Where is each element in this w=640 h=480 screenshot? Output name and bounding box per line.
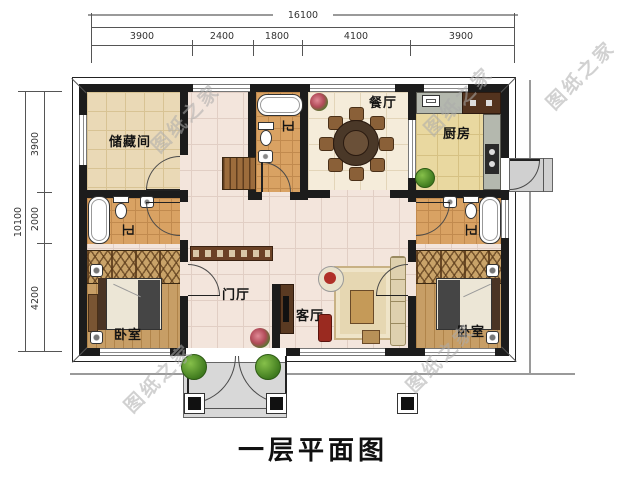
toilet <box>463 196 479 203</box>
door-leaf <box>261 162 263 192</box>
window-stairhall <box>193 84 250 92</box>
dining-chair <box>319 137 334 151</box>
pass-dining-kitchen <box>408 120 416 178</box>
porch-bush <box>181 354 207 380</box>
shoe-cabinet-detail <box>193 250 270 257</box>
toilet-bowl <box>465 203 477 219</box>
window-storage <box>79 115 87 165</box>
stove-burner <box>489 161 495 167</box>
floor-plan-canvas: 16100 3900 2400 1800 4100 3900 10100 390… <box>0 0 640 480</box>
cabinet-handle <box>486 100 492 106</box>
bathtub-inner <box>91 199 107 241</box>
wall <box>308 190 330 198</box>
bathtub-inner <box>482 199 498 241</box>
dining-chair <box>370 158 385 172</box>
kitchen-cabinet <box>462 92 501 114</box>
dim-line-left-seg <box>44 92 45 352</box>
round-chair-cushion <box>324 272 336 284</box>
stairs <box>222 157 256 190</box>
dim-top-total: 16100 <box>273 10 333 22</box>
dim-top-seg-1: 3900 <box>119 31 165 43</box>
door-leaf <box>146 189 180 191</box>
dim-left-seg-2: 2000 <box>30 195 42 243</box>
kitchen-sink-icon <box>422 95 440 107</box>
side-table <box>362 330 380 344</box>
ground-line-bottom <box>70 373 575 375</box>
dim-line-top-mid <box>92 27 515 28</box>
ground-line-right <box>529 80 531 374</box>
wall <box>408 296 416 348</box>
room-label-bath-left: 卫 <box>121 223 135 237</box>
bed-headboard <box>492 278 500 330</box>
dim-left-total: 10100 <box>13 198 25 246</box>
dining-table-center <box>343 130 369 156</box>
dim-ext-right <box>514 13 515 63</box>
dim-ext-top <box>18 91 62 92</box>
dim-line-top-seg <box>92 45 515 46</box>
wall <box>272 284 280 348</box>
wall <box>290 192 308 200</box>
toilet-bowl <box>260 130 272 146</box>
dim-top-seg-3: 1800 <box>254 31 300 43</box>
dim-top-seg-5: 3900 <box>438 31 484 43</box>
watermark: 图纸之家 <box>528 23 632 127</box>
dim-ext-bottom <box>18 351 62 352</box>
dim-left-seg-3: 4200 <box>30 274 42 322</box>
room-label-dining: 餐厅 <box>361 97 405 111</box>
dining-chair <box>349 167 364 181</box>
dim-left-seg-1: 3900 <box>30 120 42 168</box>
porch-column <box>267 394 286 413</box>
porch-column <box>185 394 204 413</box>
room-label-bath-top: 卫 <box>281 119 295 133</box>
dim-tick <box>410 40 411 56</box>
kitchen-landing-step <box>543 158 544 192</box>
window-kitchen <box>424 84 468 92</box>
dim-tick <box>37 192 52 193</box>
toilet-bowl <box>115 203 127 219</box>
cabinet-handle <box>470 100 476 106</box>
wall <box>180 240 188 262</box>
door-leaf <box>146 202 180 204</box>
dim-top-seg-2: 2400 <box>199 31 245 43</box>
bed-quilt <box>138 280 160 329</box>
room-label-bath-right: 卫 <box>464 223 478 237</box>
window-bath-right <box>501 200 509 238</box>
foyer-plant <box>250 328 270 348</box>
room-label-storage: 储藏间 <box>100 136 160 150</box>
bathtub-inner <box>260 97 300 113</box>
bed-headboard <box>98 278 106 330</box>
dim-line-left-outer <box>25 92 26 352</box>
wall <box>180 296 188 348</box>
bed-quilt <box>438 280 460 329</box>
nightstand-lamp <box>90 264 103 277</box>
wall <box>408 92 416 120</box>
wall <box>390 190 408 198</box>
dim-top-seg-4: 4100 <box>333 31 379 43</box>
toilet <box>113 196 129 203</box>
door-leaf <box>376 295 408 297</box>
dresser <box>88 294 98 332</box>
wall <box>408 240 416 262</box>
plan-title: 一层平面图 <box>193 430 433 467</box>
porch-column <box>398 394 417 413</box>
dining-plant <box>310 93 328 111</box>
coffee-table <box>350 290 374 324</box>
dim-tick <box>302 40 303 56</box>
toilet <box>258 122 274 130</box>
window-dining <box>310 84 395 92</box>
porch-bush <box>255 354 281 380</box>
kitchen-plant <box>415 168 435 188</box>
stove-burner <box>489 149 495 155</box>
window-bedroom-left <box>100 348 170 356</box>
door-leaf <box>416 202 450 204</box>
room-label-kitchen: 厨房 <box>435 128 479 142</box>
nightstand-lamp <box>486 264 499 277</box>
dim-tick <box>37 243 52 244</box>
dim-tick <box>192 40 193 56</box>
window-bedroom-right <box>425 348 495 356</box>
wall <box>248 192 262 200</box>
wall <box>180 92 188 155</box>
room-label-bedroom-right: 卧室 <box>449 326 493 340</box>
window-living <box>300 348 385 356</box>
dim-ext-left <box>91 13 92 63</box>
wall <box>180 190 188 202</box>
door-leaf <box>510 159 540 161</box>
room-label-living: 客厅 <box>288 310 332 324</box>
nightstand-lamp <box>90 331 103 344</box>
room-label-bedroom-left: 卧室 <box>106 329 150 343</box>
room-label-foyer: 门厅 <box>214 289 258 303</box>
dining-chair <box>379 137 394 151</box>
